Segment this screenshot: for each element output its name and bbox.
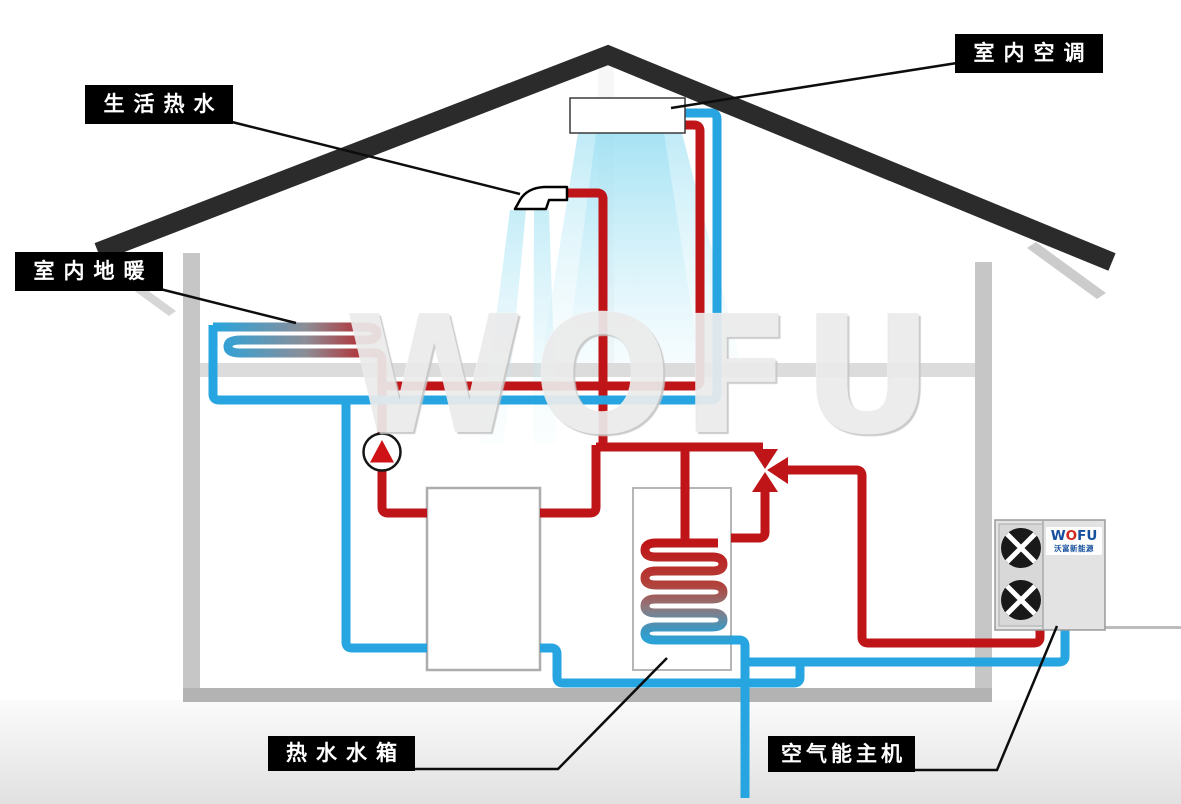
outdoor-unit-logo: WOFU 沃富新能源 <box>1046 527 1102 555</box>
bottom-slab <box>183 688 992 702</box>
label-domestic-hot-water: 生活热水 <box>85 85 233 124</box>
ground <box>0 626 1181 804</box>
brand-wordmark: WOFU <box>1046 529 1102 544</box>
heat-pump-system-diagram: WOFU WOFU 沃富新能源 生活热水 室内空调 室内地暖 热水水箱 空气能主… <box>0 0 1181 804</box>
shower-head <box>515 187 567 209</box>
pointer-floor-heating <box>160 289 296 323</box>
outdoor-ground-line <box>1100 626 1181 629</box>
label-hot-water-tank: 热水水箱 <box>268 736 415 771</box>
label-floor-heating: 室内地暖 <box>15 252 163 291</box>
wofu-watermark: WOFU <box>345 296 944 458</box>
left-wall <box>183 253 200 702</box>
valve-arrow-up-icon <box>752 472 778 492</box>
brand-letters-fu: FU <box>1077 528 1097 544</box>
label-indoor-ac: 室内空调 <box>955 34 1103 73</box>
brand-letter-w: W <box>1051 528 1066 544</box>
indoor-ac-unit <box>570 98 685 133</box>
brand-letter-o: O <box>1066 528 1077 544</box>
right-wall <box>975 262 992 702</box>
brand-chinese-name: 沃富新能源 <box>1046 544 1102 553</box>
fan-top-icon <box>1001 528 1041 568</box>
fan-bottom-icon <box>1001 580 1041 620</box>
tank-coil-outlet <box>731 490 765 538</box>
pointer-indoor-ac <box>671 63 957 108</box>
label-heat-pump-unit: 空气能主机 <box>768 736 915 772</box>
buffer-tank <box>427 488 540 670</box>
